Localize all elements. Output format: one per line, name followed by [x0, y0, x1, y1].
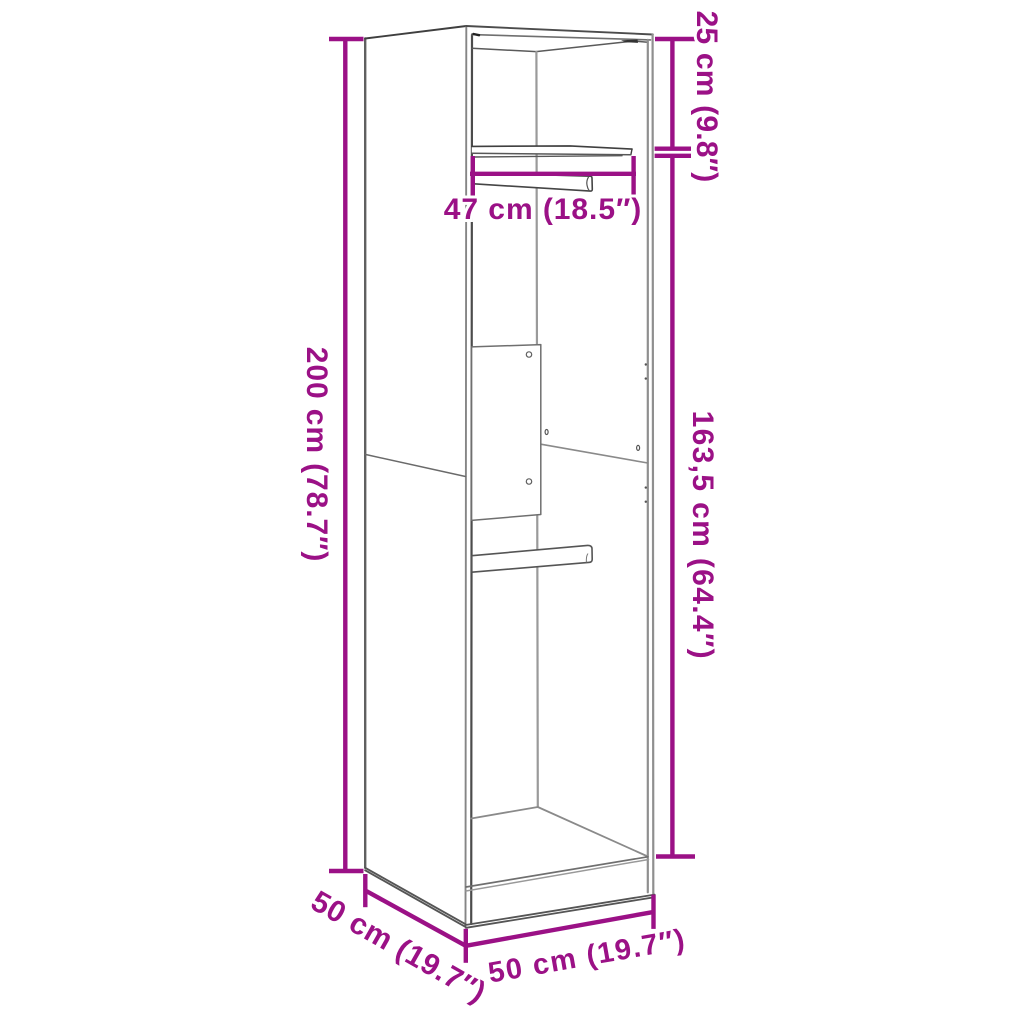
svg-text:163,5 cm (64.4″): 163,5 cm (64.4″): [686, 411, 719, 660]
svg-text:200 cm (78.7″): 200 cm (78.7″): [300, 347, 333, 562]
svg-text:47 cm (18.5″): 47 cm (18.5″): [444, 193, 643, 226]
svg-text:25 cm (9.8″): 25 cm (9.8″): [690, 11, 723, 183]
